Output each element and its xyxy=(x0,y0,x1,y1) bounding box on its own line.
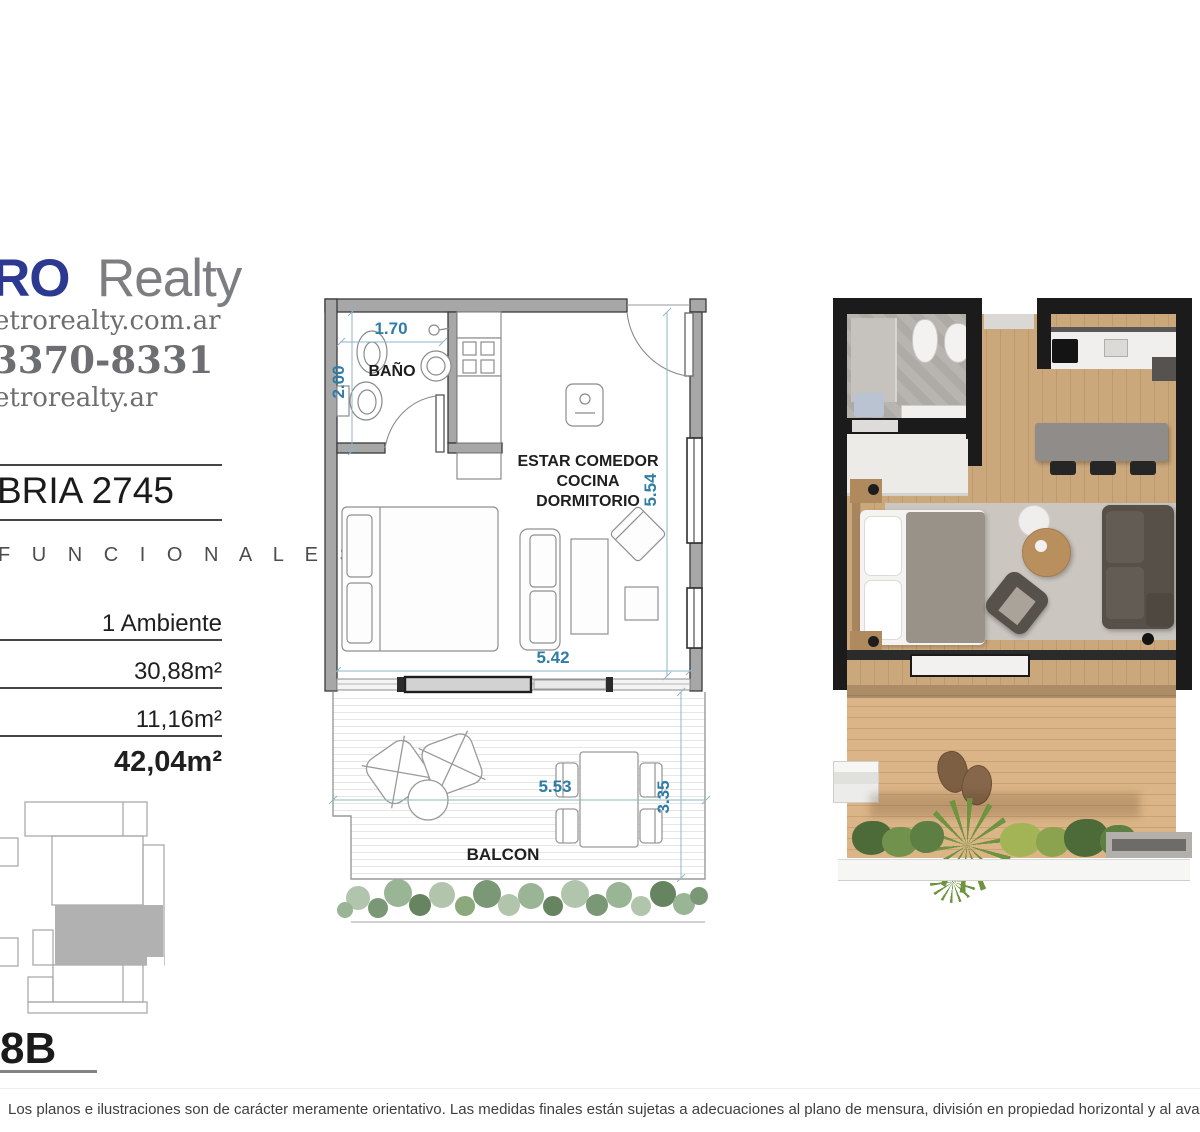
divider-line xyxy=(0,519,222,521)
uncovered-area: 11,16m² xyxy=(0,706,222,734)
balcony-lounge-chairs xyxy=(362,731,486,820)
divider-line xyxy=(0,735,222,737)
entrance-door xyxy=(627,305,693,376)
keyplan-highlighted-unit xyxy=(55,905,163,965)
render-wall xyxy=(833,298,847,690)
render-lamp xyxy=(868,636,879,647)
main-room-furniture xyxy=(342,506,666,651)
floor-plan-2d: BAÑO ESTA xyxy=(320,288,712,938)
render-lamp xyxy=(868,484,879,495)
svg-text:COCINA: COCINA xyxy=(556,473,620,490)
divider-line xyxy=(0,464,222,466)
render-stool xyxy=(1130,461,1156,475)
logo-rest-text: Realty xyxy=(97,249,241,308)
dim-room-width: 5.42 xyxy=(536,648,569,667)
keyplan xyxy=(0,795,170,1017)
render-shower xyxy=(851,318,897,402)
render-headboard xyxy=(852,496,860,648)
render-wall xyxy=(1037,298,1192,314)
render-wall xyxy=(968,434,982,466)
main-room-label: ESTAR COMEDOR COCINA DORMITORIO xyxy=(517,453,658,510)
render-island xyxy=(1035,423,1168,461)
instagram-handle: etrorealty.ar xyxy=(0,383,157,413)
website-text: etrorealty.com.ar xyxy=(0,306,221,336)
render-bidet xyxy=(912,319,938,363)
render-wall xyxy=(1037,298,1051,369)
render-ledge-slot xyxy=(1112,839,1186,851)
balcony-label: BALCON xyxy=(467,845,540,864)
render-duvet xyxy=(906,512,985,643)
dim-room-depth: 5.54 xyxy=(641,473,660,507)
dim-bath-depth: 2.00 xyxy=(329,365,348,398)
svg-text:ESTAR COMEDOR: ESTAR COMEDOR xyxy=(517,453,658,470)
covered-area: 30,88m² xyxy=(0,658,222,686)
render-sofa-cushion xyxy=(1106,511,1144,563)
lounge-chair xyxy=(610,506,667,563)
render-coffee-table xyxy=(1022,528,1071,577)
total-area: 42,04m² xyxy=(0,746,222,779)
divider-line xyxy=(0,639,222,641)
side-table xyxy=(625,587,658,620)
render-sofa-cushion xyxy=(1106,567,1144,619)
svg-text:DORMITORIO: DORMITORIO xyxy=(536,493,640,510)
window xyxy=(687,438,702,648)
bathroom-label: BAÑO xyxy=(368,360,415,380)
render-wall xyxy=(1176,298,1192,690)
render-bath-mat xyxy=(854,393,884,417)
render-stool xyxy=(1090,461,1116,475)
render-wall xyxy=(833,298,982,314)
render-sliding-panel xyxy=(910,654,1030,677)
render-wall-shadow xyxy=(847,685,1176,698)
unit-rooms: 1 Ambiente xyxy=(0,610,222,638)
sliding-door xyxy=(337,677,690,692)
render-stool xyxy=(1050,461,1076,475)
unit-code: 8B xyxy=(0,1024,56,1074)
project-title: BRIA 2745 xyxy=(0,470,174,512)
render-table-decor xyxy=(1035,540,1047,552)
render-bathroom-door xyxy=(852,420,898,432)
plan-sheet: RO Realty etrorealty.com.ar 3370-8331 et… xyxy=(0,0,1200,1132)
unit-code-underline xyxy=(0,1070,97,1073)
dim-balcony-depth: 3.35 xyxy=(654,780,673,813)
logo-accent: RO xyxy=(0,249,70,308)
render-sink xyxy=(1104,339,1128,357)
divider-line xyxy=(0,687,222,689)
logo-rest xyxy=(83,249,97,308)
kitchen-island xyxy=(566,384,603,426)
render-pillow xyxy=(864,516,902,576)
dim-balcony-width: 5.53 xyxy=(538,777,571,796)
render-3d-floorplan xyxy=(830,293,1195,905)
disclaimer-text: Los planos e ilustraciones son de caráct… xyxy=(0,1088,1200,1132)
render-cooktop xyxy=(1052,339,1078,363)
units-subtitle: F U N C I O N A L E S xyxy=(0,544,361,567)
render-planter-rim xyxy=(838,859,1190,881)
console-table xyxy=(571,539,608,634)
realty-logo: RO Realty xyxy=(0,248,241,309)
render-sofa-chaise xyxy=(1146,593,1174,627)
bathroom-door xyxy=(385,395,444,452)
render-floor-lamp xyxy=(1142,633,1154,645)
phone-number: 3370-8331 xyxy=(0,338,213,382)
render-plant-shadow xyxy=(870,793,1140,817)
planter-greenery xyxy=(337,879,708,918)
render-entry-mat xyxy=(984,314,1034,329)
dim-bath-width: 1.70 xyxy=(374,319,407,338)
